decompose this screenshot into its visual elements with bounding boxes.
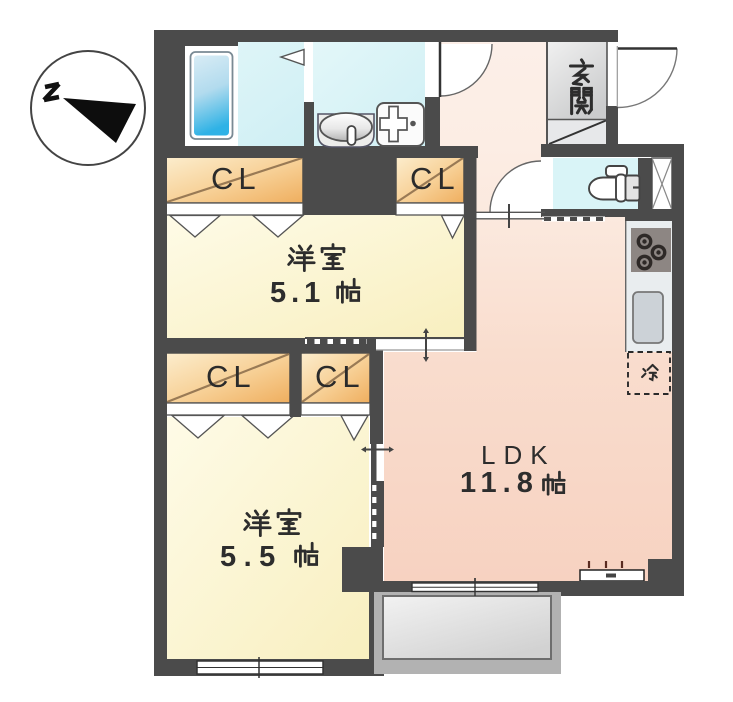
svg-text:CL: CL bbox=[315, 359, 365, 394]
svg-text:5.5: 5.5 bbox=[220, 541, 283, 573]
svg-text:CL: CL bbox=[410, 161, 460, 196]
svg-text:5.1: 5.1 bbox=[270, 277, 325, 309]
svg-text:LDK: LDK bbox=[481, 440, 556, 470]
svg-text:11.8: 11.8 bbox=[460, 467, 539, 499]
svg-text:CL: CL bbox=[206, 359, 256, 394]
svg-text:CL: CL bbox=[211, 161, 261, 196]
